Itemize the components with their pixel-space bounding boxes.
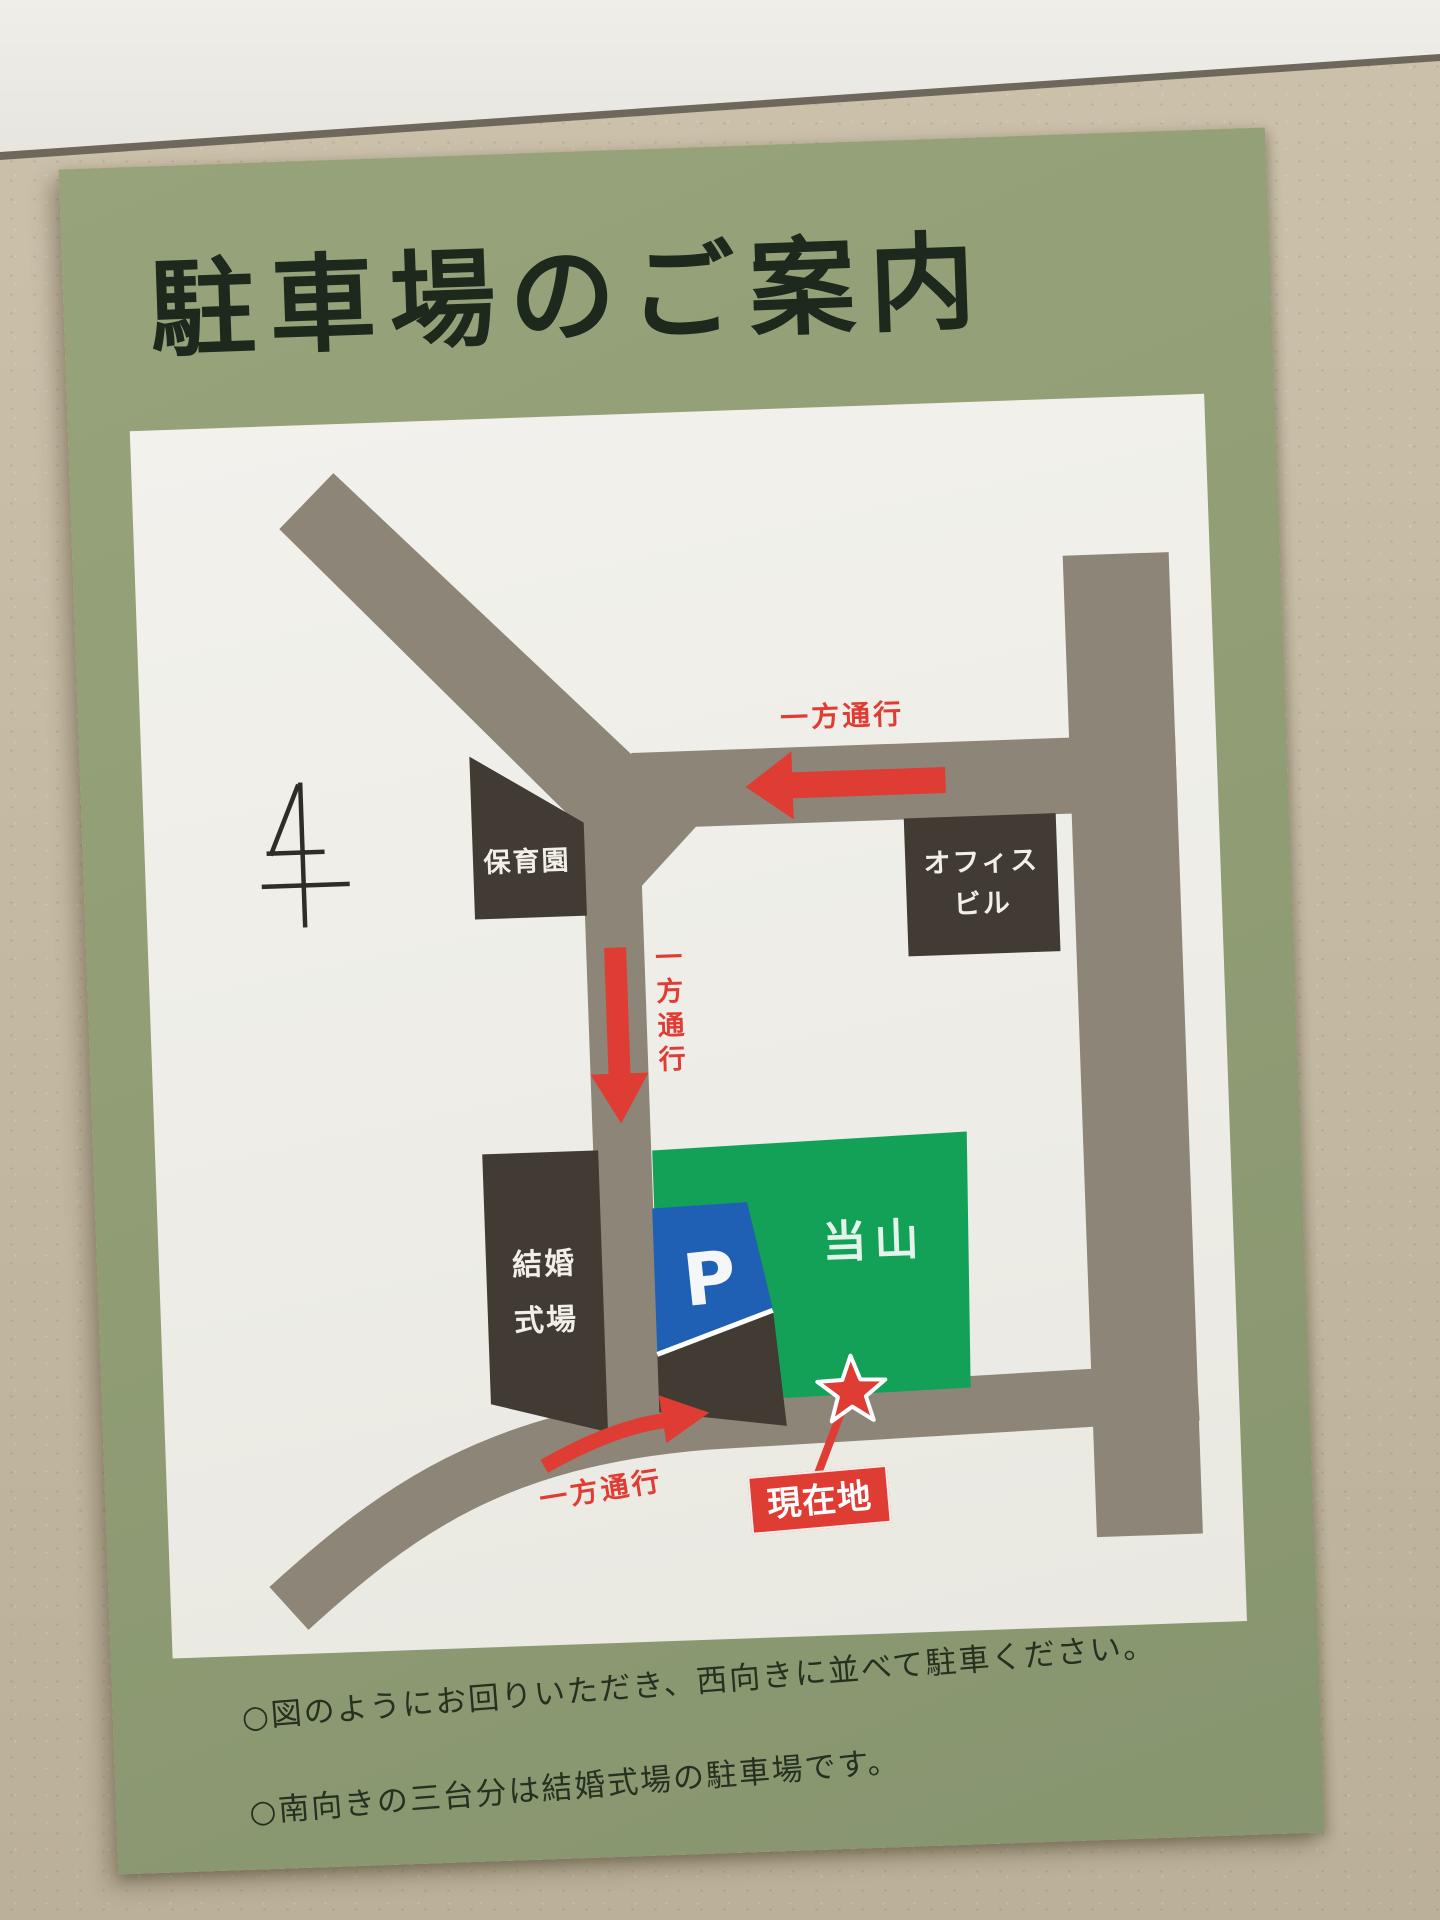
office-building-label: オフィス ビル [905,839,1060,928]
current-location-badge: 現在地 [747,1465,892,1535]
office-label-line2: ビル [906,881,1059,928]
wedding-hall-label: 結婚 式場 [485,1235,605,1351]
map-area: 保育園 オフィス ビル 結婚 式場 当山 P 一方通行 一方通行 一方通行 現在… [130,394,1247,1659]
map-drawing [130,394,1247,1659]
one-way-label-top: 一方通行 [780,699,905,734]
wedding-label-line2: 式場 [487,1291,605,1351]
parking-p-label: P [654,1234,766,1324]
wedding-label-line1: 結婚 [485,1235,603,1295]
poster-title: 駐車場のご案内 [147,188,1201,355]
office-label-line1: オフィス [905,839,1058,886]
note-line-2: ○南向きの三台分は結婚式場の駐車場です。 [247,1708,1257,1832]
parking-sign-poster: 駐車場のご案内 [59,127,1325,1874]
north-compass-icon [258,781,351,929]
one-way-label-middle: 一方通行 [650,942,686,1118]
nursery-label: 保育園 [467,846,588,880]
temple-site-label: 当山 [794,1215,956,1269]
road-bottom-curve [282,1392,1204,1609]
